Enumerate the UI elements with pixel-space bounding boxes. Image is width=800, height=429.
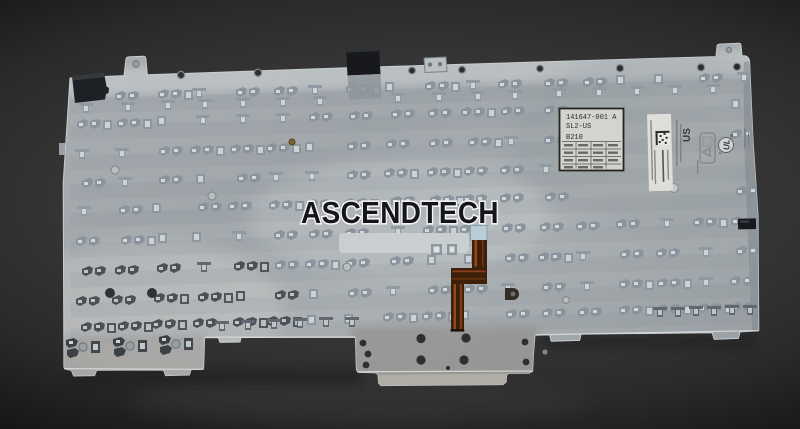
svg-text:141647-001 A: 141647-001 A bbox=[566, 114, 617, 122]
svg-text:SL2-US: SL2-US bbox=[566, 123, 591, 131]
svg-text:ASCENDTECH: ASCENDTECH bbox=[301, 195, 499, 230]
svg-text:US: US bbox=[682, 128, 693, 142]
svg-text:us: us bbox=[729, 133, 735, 139]
svg-text:UL: UL bbox=[723, 139, 732, 150]
svg-text:B210: B210 bbox=[566, 134, 583, 142]
